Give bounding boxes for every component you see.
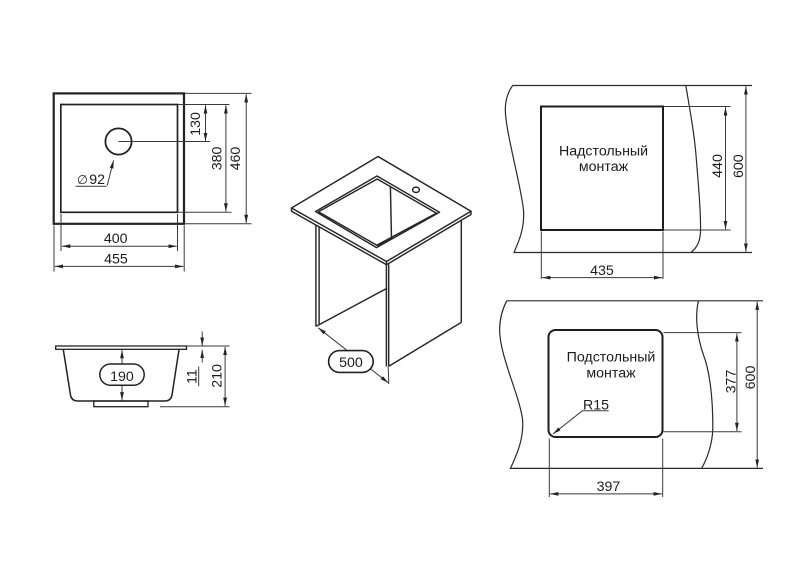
svg-text:500: 500: [339, 355, 363, 371]
svg-text:377: 377: [723, 370, 739, 394]
svg-text:монтаж: монтаж: [586, 365, 636, 381]
svg-text:∅92: ∅92: [77, 172, 105, 188]
svg-text:400: 400: [104, 231, 128, 247]
svg-text:130: 130: [188, 112, 204, 136]
svg-text:600: 600: [743, 366, 759, 390]
svg-text:380: 380: [210, 146, 226, 170]
svg-text:440: 440: [710, 154, 726, 178]
svg-text:210: 210: [210, 364, 226, 388]
svg-text:397: 397: [597, 479, 621, 495]
svg-text:460: 460: [228, 147, 244, 171]
svg-text:Подстольный: Подстольный: [567, 350, 656, 366]
svg-text:Надстольный: Надстольный: [559, 143, 648, 159]
svg-text:11: 11: [184, 369, 200, 384]
svg-text:600: 600: [731, 154, 747, 178]
svg-text:455: 455: [104, 251, 128, 267]
svg-text:монтаж: монтаж: [579, 159, 629, 175]
svg-text:190: 190: [110, 369, 134, 385]
svg-text:435: 435: [590, 263, 614, 279]
